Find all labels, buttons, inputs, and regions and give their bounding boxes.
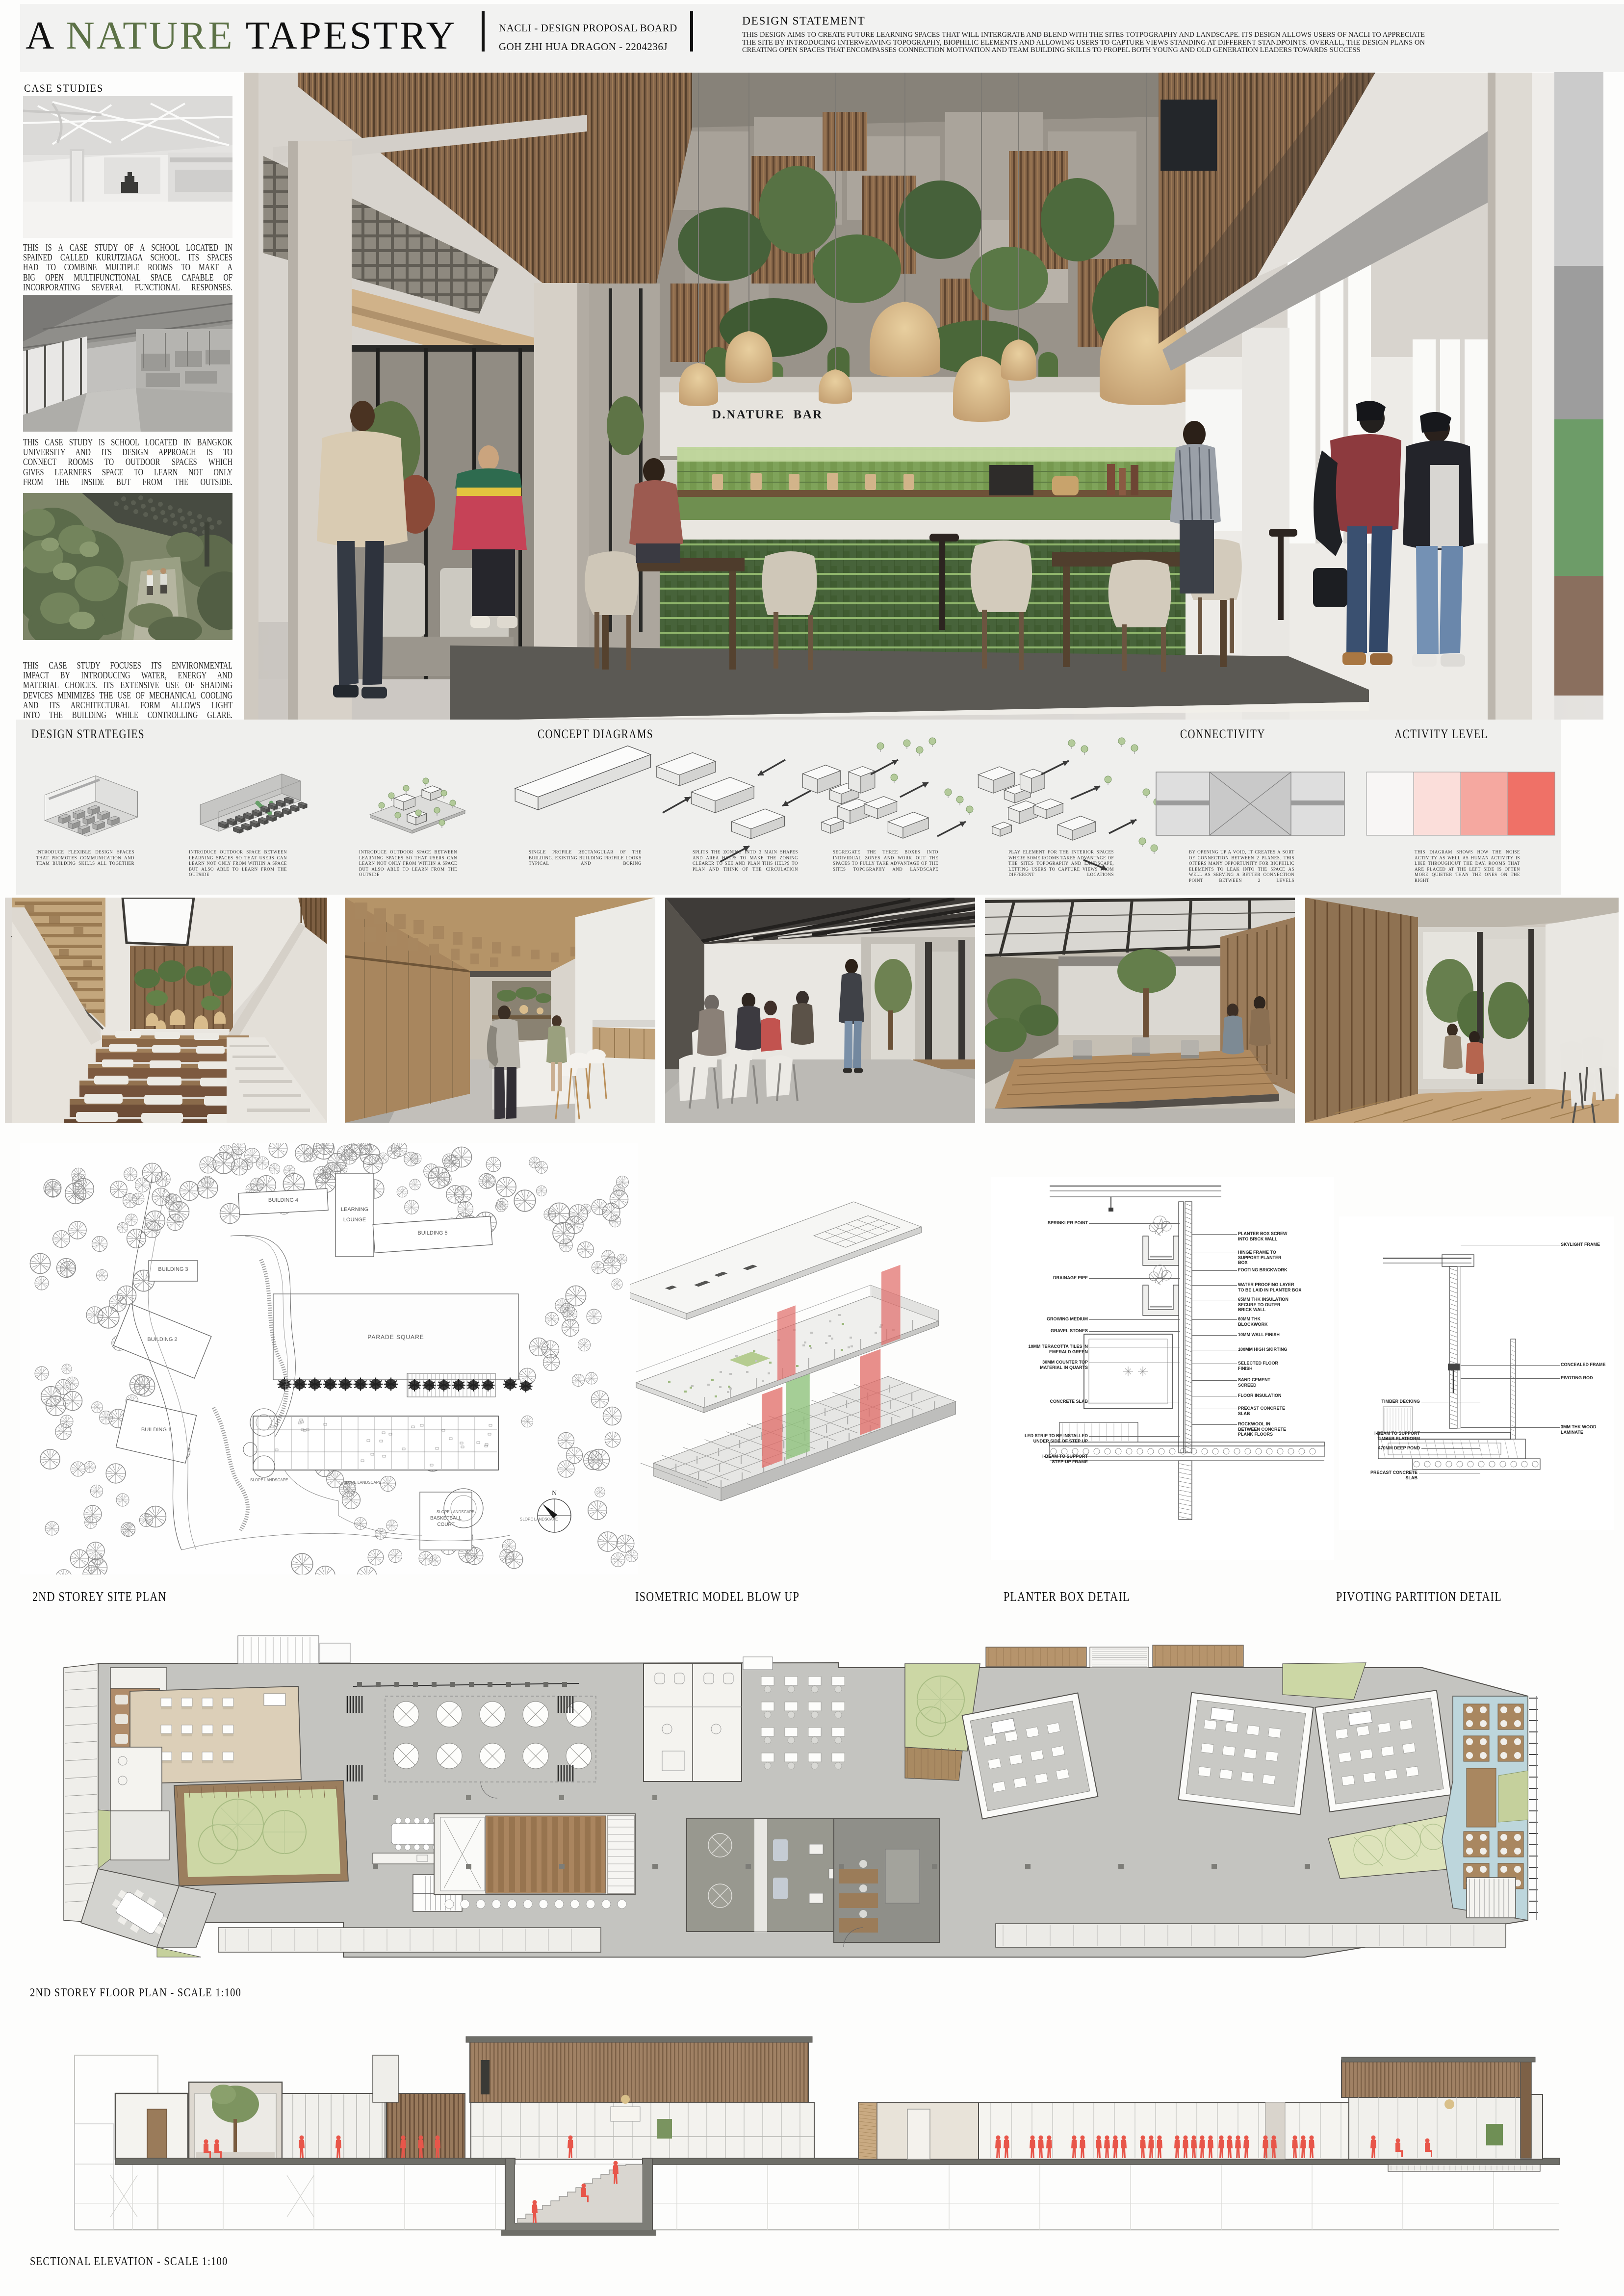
svg-text:BUILDING 5: BUILDING 5	[417, 1230, 447, 1236]
svg-text:SLOPE LANDSCAPE: SLOPE LANDSCAPE	[343, 1480, 381, 1485]
svg-text:SLOPE LANDSCAPE: SLOPE LANDSCAPE	[437, 1510, 474, 1514]
svg-text:D.NATURE BAR: D.NATURE BAR	[712, 408, 823, 421]
svg-text:SLOPE LANDSCAPE: SLOPE LANDSCAPE	[250, 1478, 288, 1482]
svg-text:LOUNGE: LOUNGE	[343, 1217, 366, 1223]
svg-text:LEARNING: LEARNING	[341, 1207, 368, 1212]
svg-text:COURT: COURT	[437, 1522, 454, 1527]
svg-text:SLOPE LANDSCAPE: SLOPE LANDSCAPE	[520, 1517, 558, 1522]
svg-text:PARADE SQUARE: PARADE SQUARE	[367, 1334, 424, 1341]
svg-text:N: N	[552, 1490, 557, 1497]
svg-text:BUILDING 2: BUILDING 2	[147, 1337, 177, 1342]
svg-text:BUILDING 4: BUILDING 4	[268, 1197, 298, 1203]
svg-text:BUILDING 1: BUILDING 1	[141, 1427, 171, 1433]
svg-text:BUILDING 3: BUILDING 3	[158, 1266, 188, 1272]
